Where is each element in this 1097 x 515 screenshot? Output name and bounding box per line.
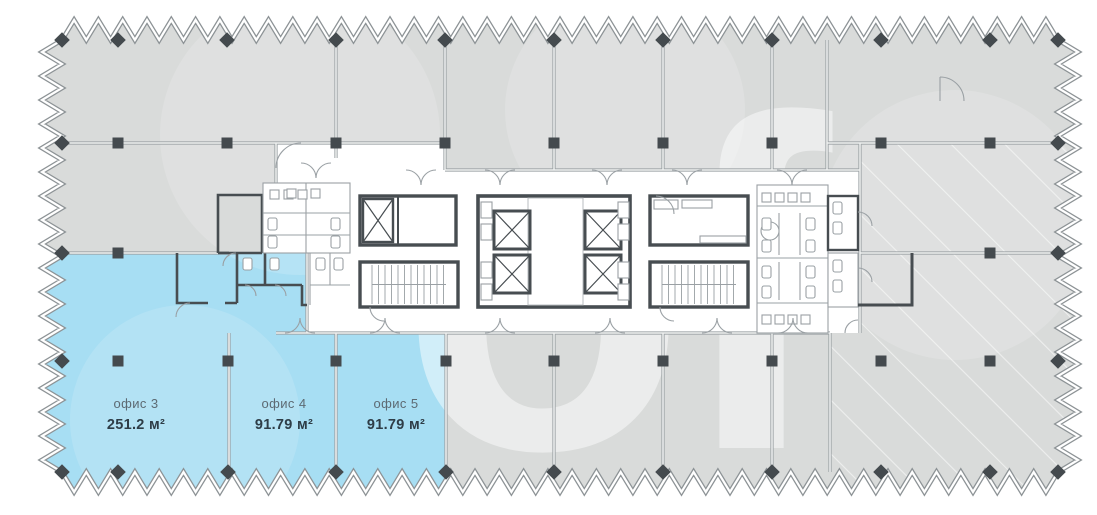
utility-room-fill xyxy=(218,195,262,253)
floor-plan-svg: of офис 3 251.2 м² офис 4 91.79 м² офис … xyxy=(0,0,1097,515)
office-4-name: офис 4 xyxy=(262,396,307,411)
office-4-area: 91.79 м² xyxy=(255,417,313,433)
office-5-name: офис 5 xyxy=(374,396,419,411)
office-3-name: офис 3 xyxy=(114,396,159,411)
office-5-area: 91.79 м² xyxy=(367,417,425,433)
office-3-area: 251.2 м² xyxy=(107,417,165,433)
floorplan-canvas: of офис 3 251.2 м² офис 4 91.79 м² офис … xyxy=(0,0,1097,515)
